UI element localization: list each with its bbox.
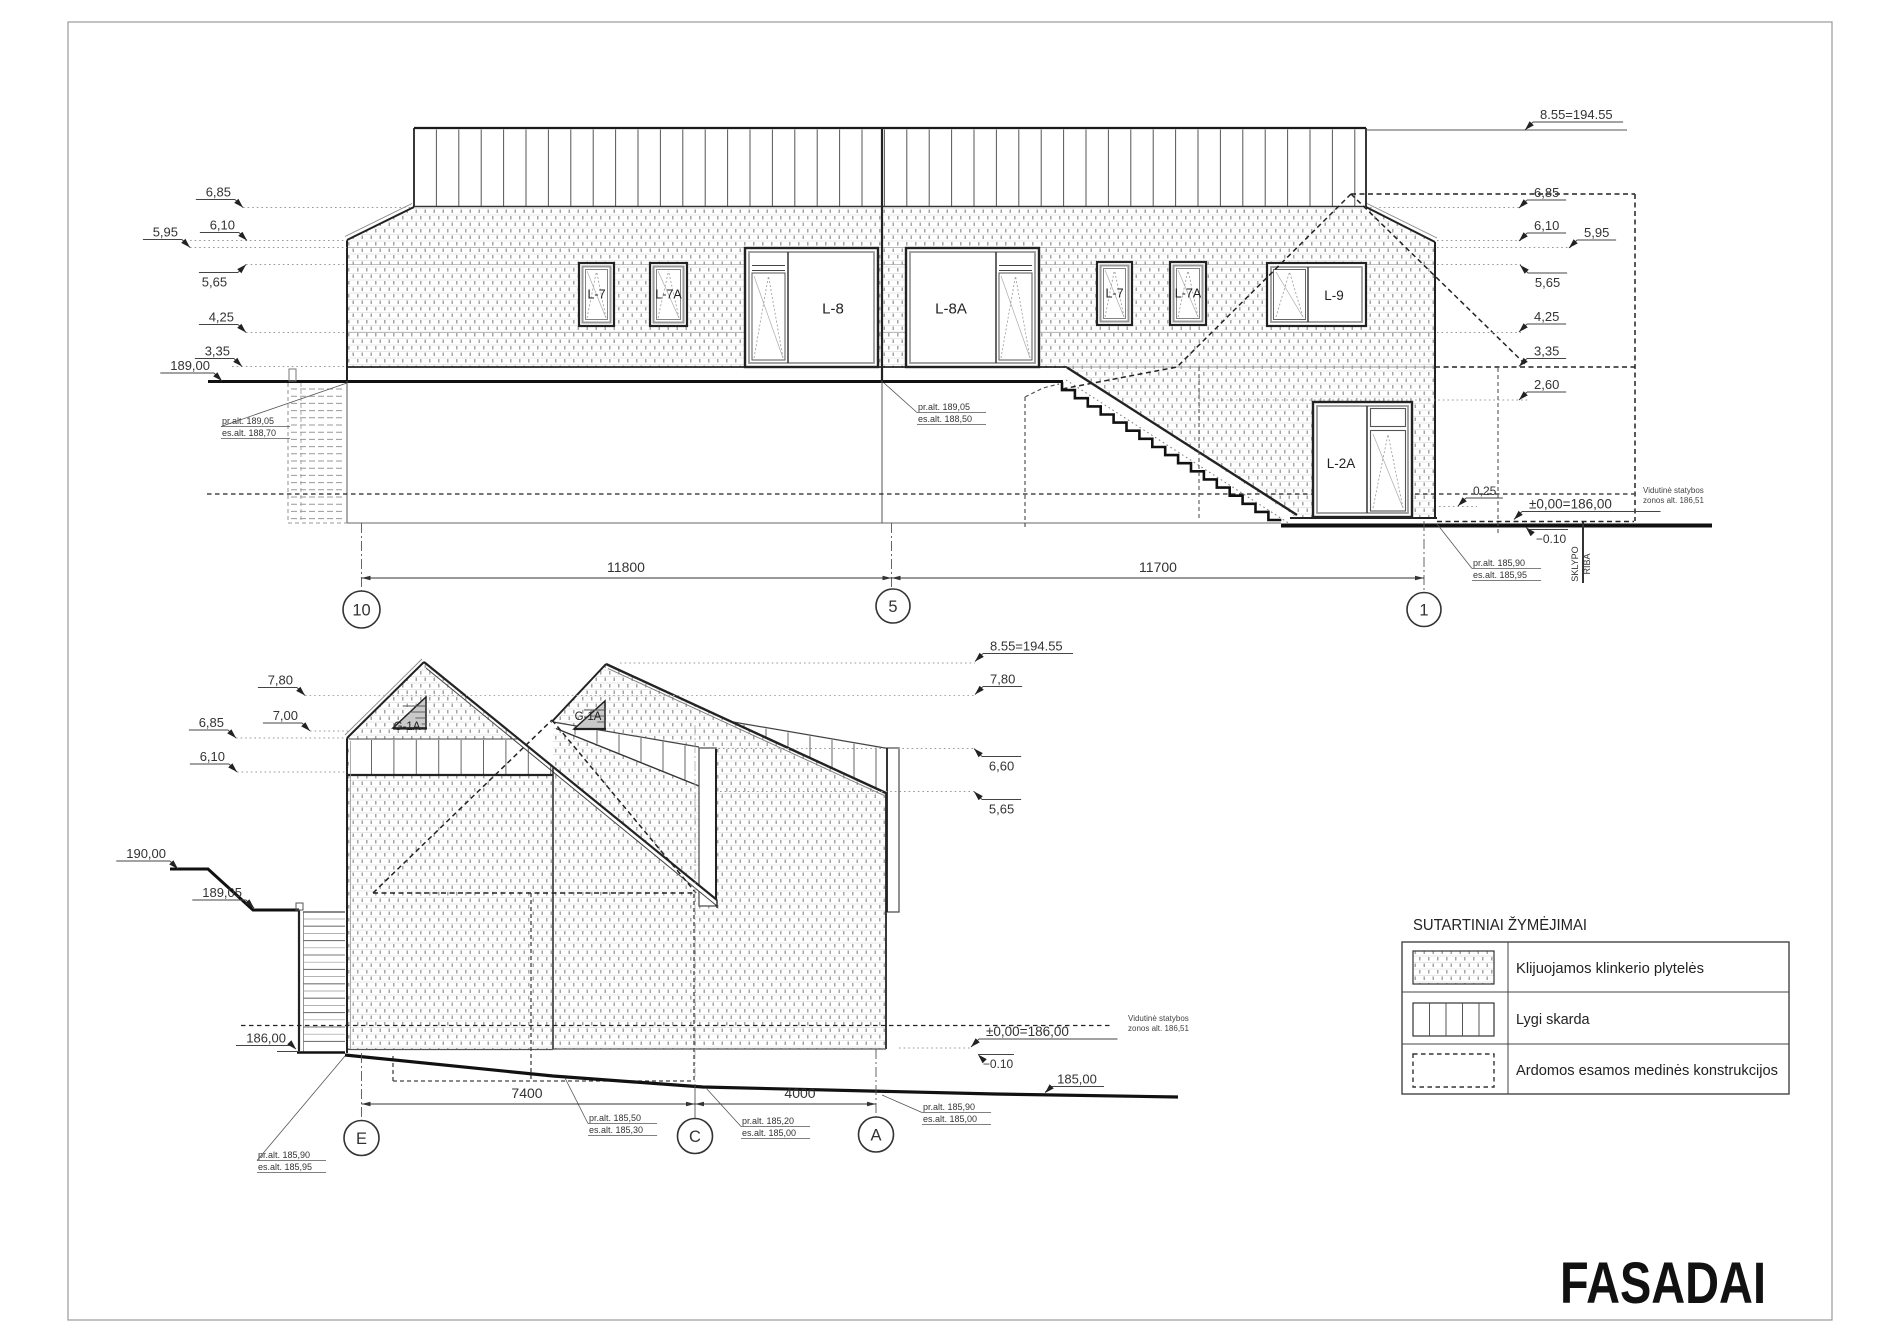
svg-text:FASADAI: FASADAI <box>1560 1251 1766 1316</box>
svg-text:11800: 11800 <box>607 559 645 575</box>
svg-text:zonos alt. 186,51: zonos alt. 186,51 <box>1643 496 1704 505</box>
svg-text:8.55=194.55: 8.55=194.55 <box>1540 107 1613 122</box>
svg-text:5: 5 <box>888 598 897 616</box>
svg-text:es.alt. 185,95: es.alt. 185,95 <box>1473 570 1527 580</box>
svg-text:3,35: 3,35 <box>1534 344 1559 359</box>
svg-text:±0,00=186,00: ±0,00=186,00 <box>1529 497 1612 512</box>
svg-text:Lygi skarda: Lygi skarda <box>1516 1012 1591 1028</box>
svg-text:A: A <box>870 1127 881 1145</box>
svg-text:pr.alt. 185,90: pr.alt. 185,90 <box>1473 558 1525 568</box>
svg-text:Vidutinė statybos: Vidutinė statybos <box>1128 1014 1189 1023</box>
svg-text:G-1A: G-1A <box>575 711 602 723</box>
svg-text:4000: 4000 <box>784 1085 815 1101</box>
svg-text:es.alt. 185,00: es.alt. 185,00 <box>742 1128 796 1138</box>
svg-text:6,10: 6,10 <box>210 218 235 233</box>
svg-text:7,00: 7,00 <box>273 708 298 723</box>
svg-text:L-7A: L-7A <box>655 288 682 302</box>
svg-text:5,95: 5,95 <box>153 225 178 240</box>
svg-text:L-8: L-8 <box>822 301 844 318</box>
svg-text:−0.10: −0.10 <box>1536 532 1567 546</box>
svg-text:2,60: 2,60 <box>1534 377 1559 392</box>
svg-text:186,00: 186,00 <box>246 1031 286 1046</box>
svg-text:L-7: L-7 <box>587 288 605 302</box>
svg-text:4,25: 4,25 <box>1534 309 1559 324</box>
svg-text:11700: 11700 <box>1139 559 1177 575</box>
svg-text:6,10: 6,10 <box>200 749 225 764</box>
svg-text:6,85: 6,85 <box>199 715 224 730</box>
svg-text:7,80: 7,80 <box>990 672 1015 687</box>
svg-text:190,00: 190,00 <box>126 846 166 861</box>
svg-text:C: C <box>689 1128 701 1146</box>
svg-text:189,00: 189,00 <box>170 358 210 373</box>
svg-text:3,35: 3,35 <box>205 344 230 359</box>
svg-text:Vidutinė statybos: Vidutinė statybos <box>1643 486 1704 495</box>
svg-text:0,25: 0,25 <box>1473 484 1497 498</box>
svg-text:Klijuojamos klinkerio plytelės: Klijuojamos klinkerio plytelės <box>1516 961 1704 977</box>
svg-text:pr.alt. 189,05: pr.alt. 189,05 <box>918 402 970 412</box>
svg-text:pr.alt. 185,20: pr.alt. 185,20 <box>742 1116 794 1126</box>
svg-text:L-7: L-7 <box>1105 287 1123 301</box>
svg-text:6,60: 6,60 <box>989 759 1014 774</box>
svg-text:185,00: 185,00 <box>1057 1072 1097 1087</box>
svg-text:1: 1 <box>1419 602 1428 620</box>
svg-text:es.alt. 188,50: es.alt. 188,50 <box>918 414 972 424</box>
svg-text:7,80: 7,80 <box>268 673 293 688</box>
svg-text:es.alt. 185,30: es.alt. 185,30 <box>589 1125 643 1135</box>
svg-text:es.alt. 185,00: es.alt. 185,00 <box>923 1114 977 1124</box>
svg-text:L-2A: L-2A <box>1327 456 1356 471</box>
svg-text:RIBA: RIBA <box>1582 553 1592 574</box>
svg-text:6,85: 6,85 <box>1534 185 1559 200</box>
svg-text:SUTARTINIAI ŽYMĖJIMAI: SUTARTINIAI ŽYMĖJIMAI <box>1413 916 1587 934</box>
svg-text:8.55=194.55: 8.55=194.55 <box>990 639 1063 654</box>
svg-text:L-8A: L-8A <box>935 301 967 318</box>
svg-text:189,05: 189,05 <box>202 885 242 900</box>
svg-text:6,85: 6,85 <box>206 185 231 200</box>
svg-text:G-1A: G-1A <box>394 721 421 733</box>
svg-text:pr.alt. 185,90: pr.alt. 185,90 <box>258 1150 310 1160</box>
svg-text:L-7A: L-7A <box>1175 287 1202 301</box>
svg-text:5,95: 5,95 <box>1584 225 1609 240</box>
svg-text:6,10: 6,10 <box>1534 218 1559 233</box>
svg-text:−0.10: −0.10 <box>983 1057 1014 1071</box>
svg-text:5,65: 5,65 <box>202 275 227 290</box>
svg-text:es.alt. 185,95: es.alt. 185,95 <box>258 1162 312 1172</box>
svg-text:es.alt. 188,70: es.alt. 188,70 <box>222 428 276 438</box>
svg-text:zonos alt. 186,51: zonos alt. 186,51 <box>1128 1024 1189 1033</box>
svg-text:4,25: 4,25 <box>209 310 234 325</box>
svg-text:Ardomos esamos medinės konstru: Ardomos esamos medinės konstrukcijos <box>1516 1063 1778 1079</box>
svg-text:±0,00=186,00: ±0,00=186,00 <box>986 1024 1069 1039</box>
svg-text:E: E <box>356 1130 367 1148</box>
svg-text:L-9: L-9 <box>1324 288 1344 303</box>
svg-text:pr.alt. 185,90: pr.alt. 185,90 <box>923 1102 975 1112</box>
svg-text:pr.alt. 185,50: pr.alt. 185,50 <box>589 1113 641 1123</box>
svg-text:7400: 7400 <box>511 1085 542 1101</box>
svg-text:10: 10 <box>352 602 370 620</box>
svg-text:5,65: 5,65 <box>1535 275 1560 290</box>
svg-text:5,65: 5,65 <box>989 802 1014 817</box>
svg-text:SKLYPO: SKLYPO <box>1570 546 1580 581</box>
